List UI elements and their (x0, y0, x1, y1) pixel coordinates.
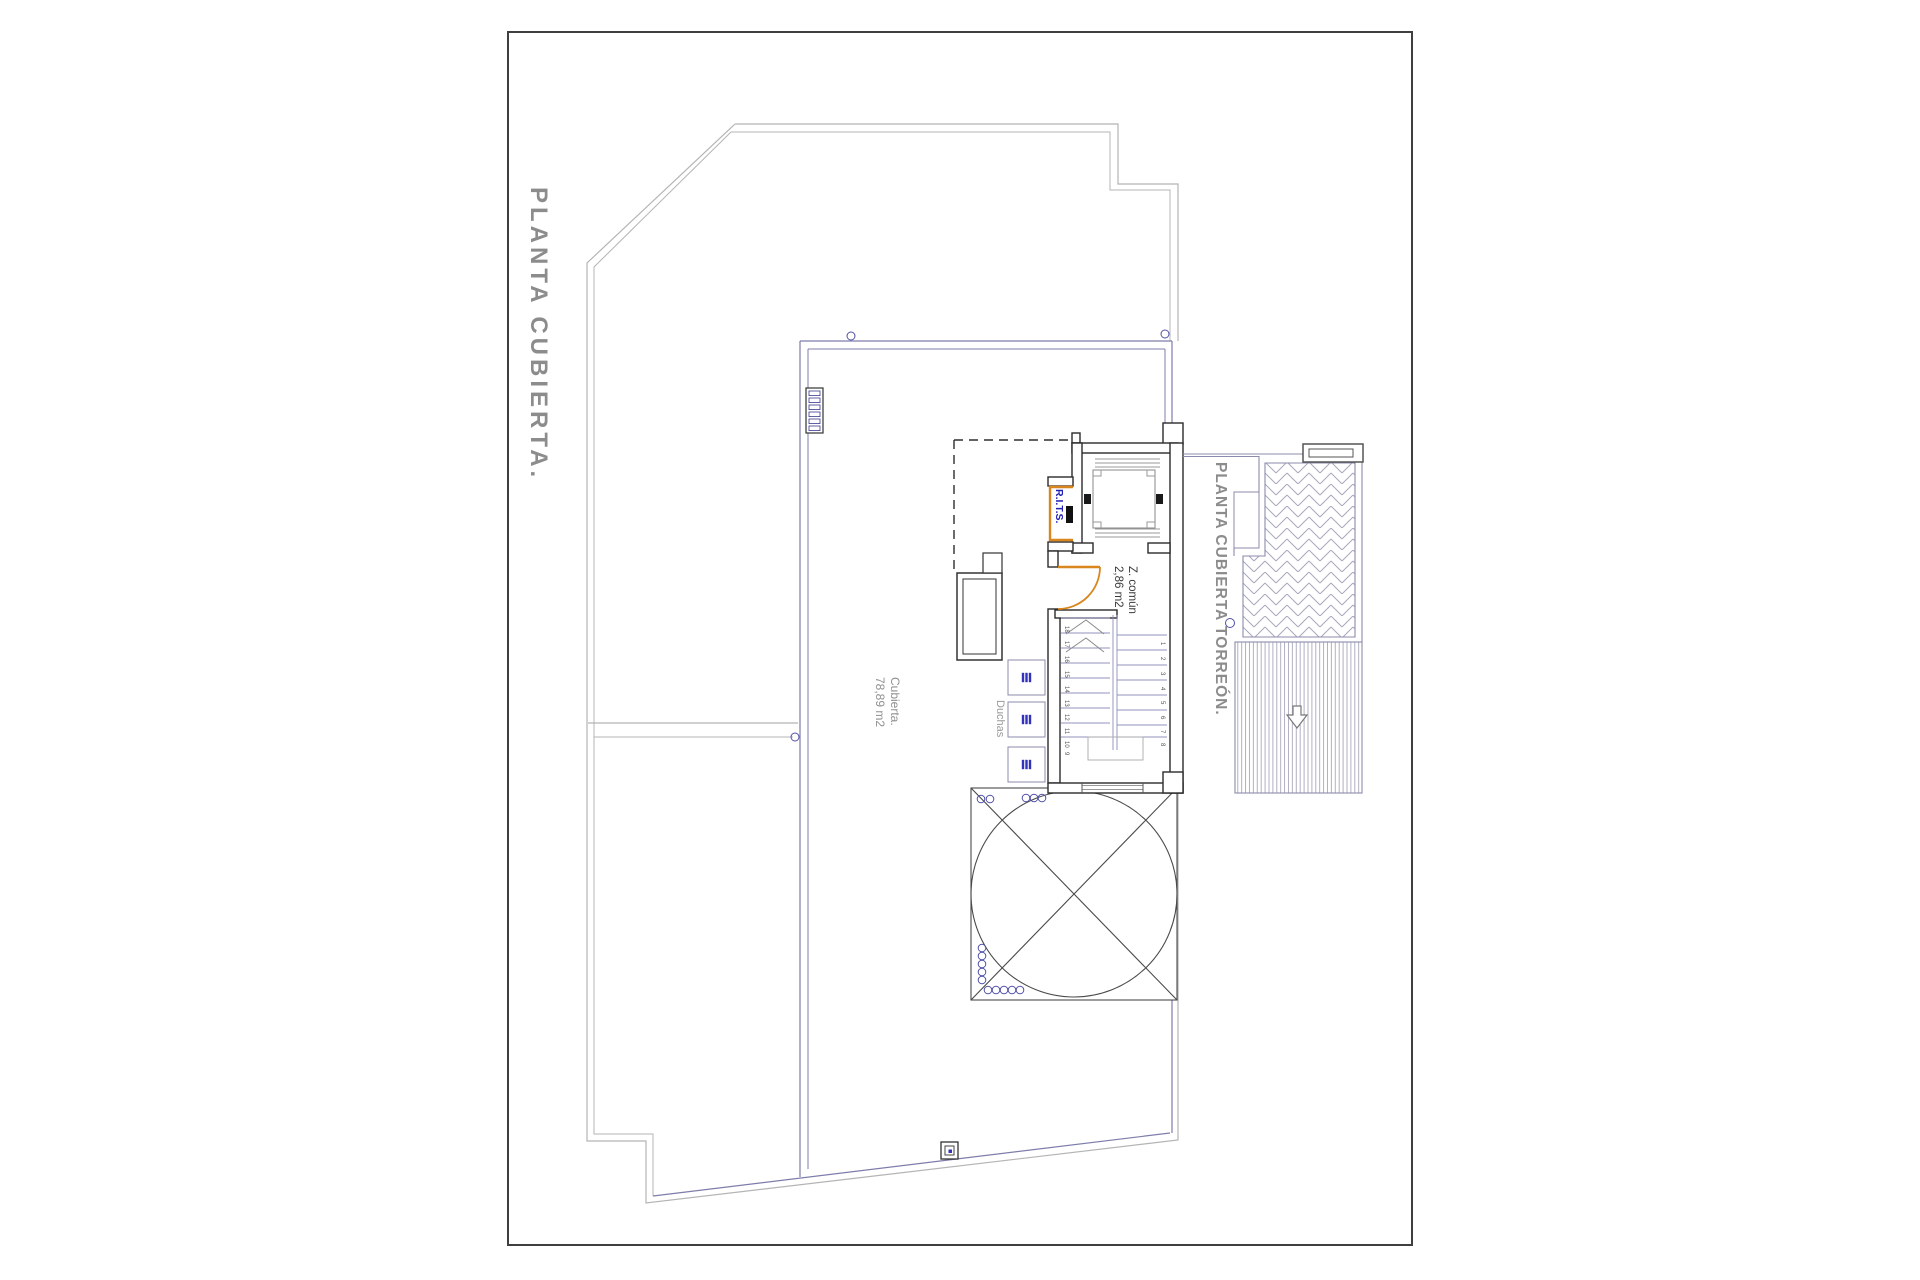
rits-cabinet: R.I.T.S. (1049, 486, 1073, 541)
stair-number: 11 (1063, 728, 1069, 735)
elevator-rail (1084, 494, 1091, 504)
stair-number: 18 (1063, 626, 1069, 633)
torreon-landing (1234, 492, 1259, 548)
stair-number: 14 (1063, 686, 1069, 693)
roof-drain-box (941, 1142, 958, 1159)
zcomun-area-name: Z. común (1126, 566, 1138, 614)
stair-number: 15 (1063, 671, 1069, 678)
roof-plan-drawing: R.I.T.S. 18 17 16 15 14 13 12 11 10 9 1 … (0, 0, 1920, 1280)
stair-number: 17 (1063, 641, 1069, 648)
stair-number: 10 (1063, 741, 1069, 748)
shower-units (1008, 660, 1045, 782)
stair-number: 16 (1063, 656, 1069, 663)
roof-access-door (1082, 783, 1143, 793)
torreon-title: PLANTA CUBIERTA TORREÓN. (1212, 462, 1230, 716)
zcomun-area-size: 2,86 m2 (1112, 566, 1124, 608)
sheet-title: PLANTA CUBIERTA. (525, 187, 552, 481)
elevator-rail (1156, 494, 1163, 504)
duchas-label: Duchas (994, 700, 1006, 738)
stair-number: 13 (1063, 700, 1069, 707)
rits-equipment (1066, 506, 1073, 523)
cubierta-area-size: 78,89 m2 (873, 677, 887, 727)
cubierta-area-name: Cubierta. (888, 677, 902, 726)
stair-number: 12 (1063, 714, 1069, 721)
wall-pier (1163, 423, 1183, 444)
drawing-viewport: R.I.T.S. 18 17 16 15 14 13 12 11 10 9 1 … (0, 0, 1920, 1280)
vent-grille (806, 388, 823, 433)
rits-label: R.I.T.S. (1053, 489, 1065, 524)
